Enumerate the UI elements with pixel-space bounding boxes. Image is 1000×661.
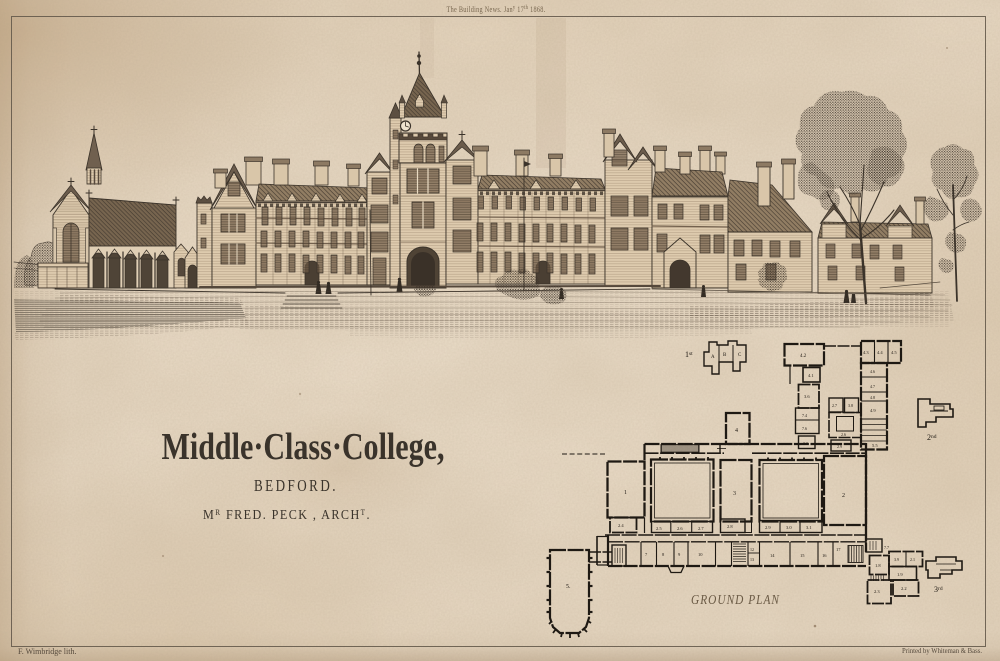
- svg-text:10: 10: [698, 552, 703, 557]
- svg-text:MR FRED. PECK , ARCHT.: MR FRED. PECK , ARCHT.: [203, 507, 371, 522]
- svg-text:3.9: 3.9: [894, 557, 899, 562]
- svg-text:4.6: 4.6: [870, 369, 875, 374]
- svg-text:4.4: 4.4: [877, 350, 883, 355]
- svg-text:15: 15: [800, 553, 805, 558]
- svg-text:7.7: 7.7: [884, 545, 889, 550]
- svg-text:2.7: 2.7: [832, 403, 837, 408]
- svg-text:16: 16: [822, 553, 827, 558]
- svg-text:17: 17: [836, 547, 841, 552]
- svg-text:The Building News. Jany 17th 1: The Building News. Jany 17th 1868.: [447, 5, 546, 14]
- svg-text:4.1: 4.1: [808, 373, 814, 378]
- svg-text:4.7: 4.7: [870, 384, 875, 389]
- svg-text:4.9: 4.9: [870, 408, 876, 413]
- svg-text:5.5: 5.5: [872, 443, 878, 448]
- svg-text:4.5: 4.5: [891, 350, 897, 355]
- svg-text:4.2: 4.2: [800, 354, 807, 359]
- svg-text:Middle·Class·College,: Middle·Class·College,: [162, 426, 445, 468]
- svg-text:2.6: 2.6: [841, 432, 846, 437]
- svg-text:3.6: 3.6: [804, 394, 810, 399]
- svg-text:12: 12: [750, 547, 754, 552]
- svg-text:3.8: 3.8: [848, 403, 853, 408]
- svg-text:Printed by Whiteman & Bass.: Printed by Whiteman & Bass.: [902, 646, 982, 655]
- svg-text:2.9: 2.9: [837, 444, 842, 449]
- svg-text:2.4: 2.4: [618, 523, 624, 528]
- svg-text:GROUND PLAN: GROUND PLAN: [691, 592, 780, 607]
- svg-text:3.3: 3.3: [803, 441, 808, 446]
- svg-text:7.6: 7.6: [802, 426, 807, 431]
- svg-text:2.3: 2.3: [874, 589, 880, 594]
- svg-text:1: 1: [624, 490, 627, 496]
- svg-text:2.9: 2.9: [765, 525, 771, 530]
- svg-text:BEDFORD.: BEDFORD.: [254, 476, 338, 495]
- svg-text:2.5: 2.5: [656, 526, 662, 531]
- svg-text:5.: 5.: [566, 584, 571, 590]
- svg-text:1.8: 1.8: [875, 563, 881, 568]
- svg-text:4.3: 4.3: [863, 350, 869, 355]
- svg-text:4.8: 4.8: [870, 395, 875, 400]
- svg-text:2.2: 2.2: [901, 586, 907, 591]
- svg-text:4: 4: [735, 428, 738, 434]
- svg-text:1.9: 1.9: [897, 572, 903, 577]
- svg-text:14: 14: [770, 553, 775, 558]
- svg-text:F. Wimbridge lith.: F. Wimbridge lith.: [18, 647, 76, 656]
- svg-text:2.1: 2.1: [910, 557, 915, 562]
- svg-text:3: 3: [733, 491, 736, 497]
- svg-text:2.8: 2.8: [727, 524, 733, 529]
- svg-text:2.6: 2.6: [677, 526, 683, 531]
- svg-text:2: 2: [842, 493, 845, 499]
- svg-text:3.1: 3.1: [806, 525, 812, 530]
- svg-text:2.7: 2.7: [698, 526, 704, 531]
- svg-text:7.4: 7.4: [802, 413, 807, 418]
- svg-text:A: A: [711, 355, 715, 360]
- svg-text:3.0: 3.0: [786, 525, 792, 530]
- svg-text:13: 13: [750, 557, 754, 562]
